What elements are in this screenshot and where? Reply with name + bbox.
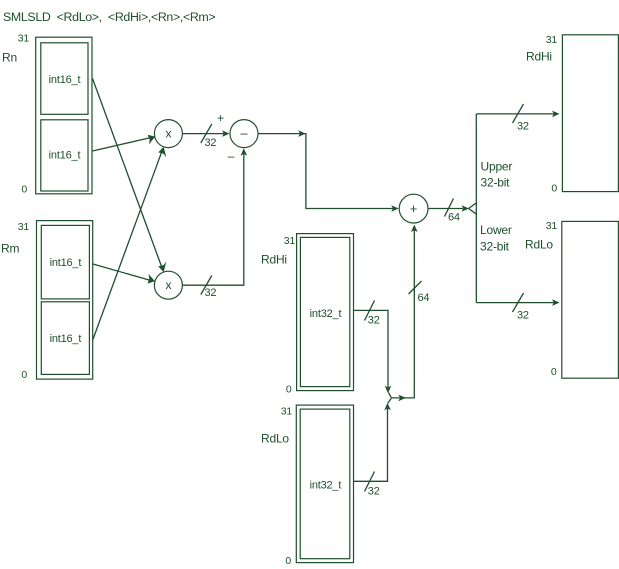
svg-text:64: 64	[448, 211, 460, 223]
svg-text:32: 32	[368, 486, 380, 498]
svg-text:0: 0	[21, 369, 27, 381]
svg-text:int16_t: int16_t	[50, 333, 82, 345]
svg-text:SMLSLD <RdLo>, <RdHi>,<Rn>,<: SMLSLD <RdLo>, <RdHi>,<Rn>,<Rm>	[3, 10, 215, 24]
svg-text:int32_t: int32_t	[310, 308, 342, 320]
svg-text:31: 31	[284, 235, 296, 247]
svg-text:31: 31	[18, 221, 30, 233]
svg-text:–: –	[228, 149, 235, 163]
svg-text:31: 31	[18, 33, 30, 45]
svg-text:RdHi: RdHi	[261, 253, 287, 267]
svg-text:Upper: Upper	[481, 160, 513, 174]
svg-text:31: 31	[546, 220, 558, 232]
svg-text:31: 31	[281, 406, 293, 418]
svg-text:32: 32	[517, 120, 529, 132]
svg-text:64: 64	[418, 292, 430, 304]
svg-text:32-bit: 32-bit	[481, 176, 511, 190]
svg-text:0: 0	[286, 384, 292, 396]
svg-text:–: –	[240, 125, 248, 140]
svg-text:x: x	[165, 278, 171, 292]
svg-text:Rm: Rm	[1, 242, 19, 256]
svg-text:RdLo: RdLo	[261, 432, 289, 446]
svg-text:int16_t: int16_t	[49, 74, 81, 86]
svg-text:RdLo: RdLo	[525, 238, 553, 252]
svg-text:0: 0	[551, 183, 557, 195]
svg-text:int32_t: int32_t	[310, 479, 342, 491]
svg-text:Lower: Lower	[480, 223, 512, 237]
svg-text:31: 31	[546, 34, 558, 46]
svg-text:+: +	[410, 201, 418, 216]
svg-text:int16_t: int16_t	[50, 257, 82, 269]
svg-text:0: 0	[285, 555, 291, 567]
svg-text:RdHi: RdHi	[526, 50, 552, 64]
svg-text:+: +	[217, 111, 224, 125]
svg-text:32: 32	[368, 315, 380, 327]
svg-text:Rn: Rn	[2, 51, 17, 65]
svg-text:32: 32	[205, 287, 217, 299]
svg-text:0: 0	[21, 184, 27, 196]
svg-text:int16_t: int16_t	[49, 150, 81, 162]
svg-text:x: x	[165, 127, 171, 141]
svg-text:0: 0	[551, 366, 557, 378]
svg-text:32: 32	[517, 309, 529, 321]
svg-text:32-bit: 32-bit	[480, 240, 510, 254]
svg-text:32: 32	[205, 137, 217, 149]
